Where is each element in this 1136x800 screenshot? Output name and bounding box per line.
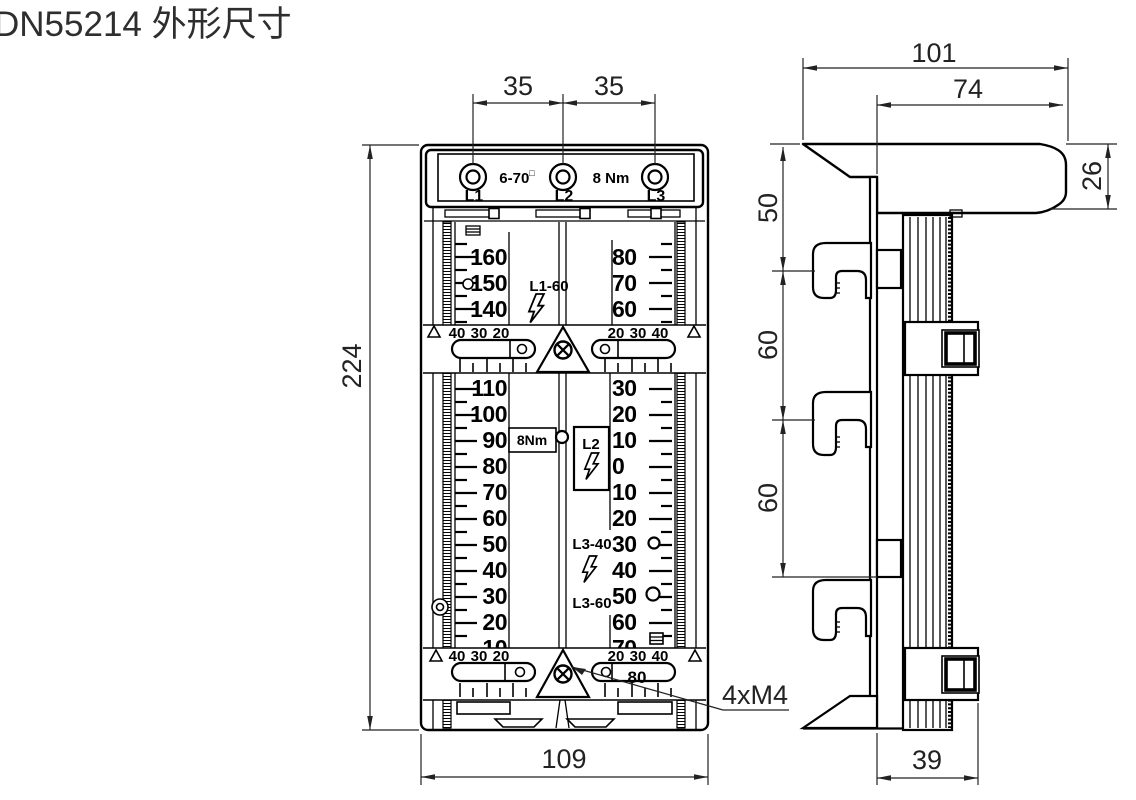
index-hole — [649, 538, 660, 549]
drawing-canvas: DN55214 外形尺寸 — [0, 0, 1136, 800]
scale-value: 60 — [482, 505, 507, 531]
scale-value: 160 — [470, 244, 507, 270]
dim-hook-chain: 50 60 60 — [753, 144, 877, 577]
scale-value: 140 — [470, 296, 507, 322]
scale-value: 60 — [612, 296, 637, 322]
dim-value: 101 — [911, 38, 956, 68]
terminal-l3[interactable] — [642, 164, 668, 190]
scale-value: 30 — [482, 583, 507, 609]
l2-label: L2 — [582, 436, 600, 453]
center-hole — [556, 431, 568, 443]
upper-right-ticks — [649, 244, 672, 322]
l3-40-label: L3-40 — [572, 536, 611, 553]
page-title: DN55214 外形尺寸 — [0, 5, 292, 44]
din-clamp-lower[interactable] — [905, 648, 979, 700]
front-view: 160 150 140 80 70 60 L1-60 110 100 90 80 — [421, 145, 708, 730]
terminal-l1[interactable] — [460, 164, 486, 190]
slot-pin — [601, 345, 610, 354]
foot-tab — [567, 719, 614, 727]
slot-pin — [602, 668, 611, 677]
clamp-screw[interactable] — [555, 342, 572, 359]
scale-value: 40 — [612, 557, 637, 583]
scale-value: 80 — [482, 453, 507, 479]
clamp-screw[interactable] — [555, 666, 572, 683]
side-cap-outline — [803, 144, 1066, 213]
terminal-l2[interactable] — [550, 164, 576, 190]
busbar-hook — [813, 243, 871, 298]
scale-value: 70 — [482, 479, 507, 505]
dim-value: 50 — [753, 193, 783, 223]
upper-scale: 160 150 140 80 70 60 L1-60 — [455, 244, 672, 323]
slot-pin — [518, 345, 527, 354]
scale-value: 20 — [482, 609, 507, 635]
dim-value: 39 — [912, 745, 942, 775]
rail-assembly — [903, 210, 979, 730]
vent-slot — [466, 226, 480, 235]
terminal-label: L3 — [647, 188, 666, 205]
dim-value: 109 — [541, 744, 586, 774]
dim-value: 60 — [753, 483, 783, 513]
lightning-icon — [583, 556, 597, 582]
scale-value: 40 — [482, 557, 507, 583]
dim-depth: 101 — [803, 38, 1068, 141]
rail-hole — [432, 599, 448, 615]
scale-value: 10 — [612, 479, 637, 505]
scale-value: 0 — [612, 453, 624, 479]
slot-pin — [516, 668, 525, 677]
scale-value: 30 — [612, 375, 637, 401]
bottom-adjuster-band: 40 30 20 20 30 40 80 — [423, 648, 706, 700]
scale-value: 80 — [612, 244, 637, 270]
mounting-tabs — [445, 209, 680, 219]
dim-value: 4xM4 — [722, 680, 788, 710]
dim-value: 60 — [753, 330, 783, 360]
scale-value: 50 — [482, 531, 507, 557]
scale-value: 20 — [612, 505, 637, 531]
scale-value: 10 — [612, 427, 637, 453]
middle-adjuster-band: 40 30 20 20 30 40 — [423, 325, 706, 373]
torque-label: 8 Nm — [593, 170, 630, 187]
dim-value: 26 — [1077, 161, 1107, 191]
index-hole — [463, 279, 473, 289]
terminal-label: L2 — [555, 188, 574, 205]
scale-value: 60 — [612, 609, 637, 635]
fuse-size-label: L1-60 — [529, 278, 568, 295]
front-bottom-section — [457, 700, 672, 728]
scale-value: 150 — [470, 270, 507, 296]
scale-value: 50 — [612, 583, 637, 609]
scale-value: 20 — [612, 401, 637, 427]
index-hole — [647, 588, 660, 601]
scale-value: 90 — [482, 427, 507, 453]
scale-value: 110 — [471, 375, 507, 401]
dim-value: 224 — [337, 343, 367, 388]
dim-value: 35 — [594, 71, 624, 101]
dim-height: 224 — [337, 145, 419, 730]
l3-60-label: L3-60 — [572, 595, 611, 612]
busbar-hook — [813, 392, 871, 455]
dimension-drawing: DN55214 外形尺寸 — [0, 0, 1136, 800]
dim-width: 109 — [421, 734, 708, 785]
dim-value: 74 — [953, 74, 983, 104]
busbar-hook — [813, 580, 871, 640]
lightning-icon — [529, 294, 544, 323]
scale-value: 70 — [612, 270, 637, 296]
side-foot-wedge — [803, 696, 877, 728]
scale-value: 30 — [612, 531, 637, 557]
torque-small-label: 8Nm — [517, 432, 547, 448]
side-boss — [877, 540, 901, 577]
main-scale: 110 100 90 80 70 60 50 40 30 20 10 30 20… — [432, 375, 672, 661]
terminal-box: L1 L2 L3 6-70□ 8 Nm — [426, 150, 703, 207]
dim-value: 35 — [503, 71, 533, 101]
scale-value: 100 — [470, 401, 507, 427]
foot-tab — [495, 719, 542, 727]
terminal-label: L1 — [465, 188, 484, 205]
din-clamp-upper[interactable] — [905, 322, 979, 375]
fuse-symbol — [650, 633, 663, 644]
side-view — [803, 144, 1066, 730]
wire-range-label: 6-70□ — [499, 168, 535, 187]
side-boss — [877, 250, 901, 288]
